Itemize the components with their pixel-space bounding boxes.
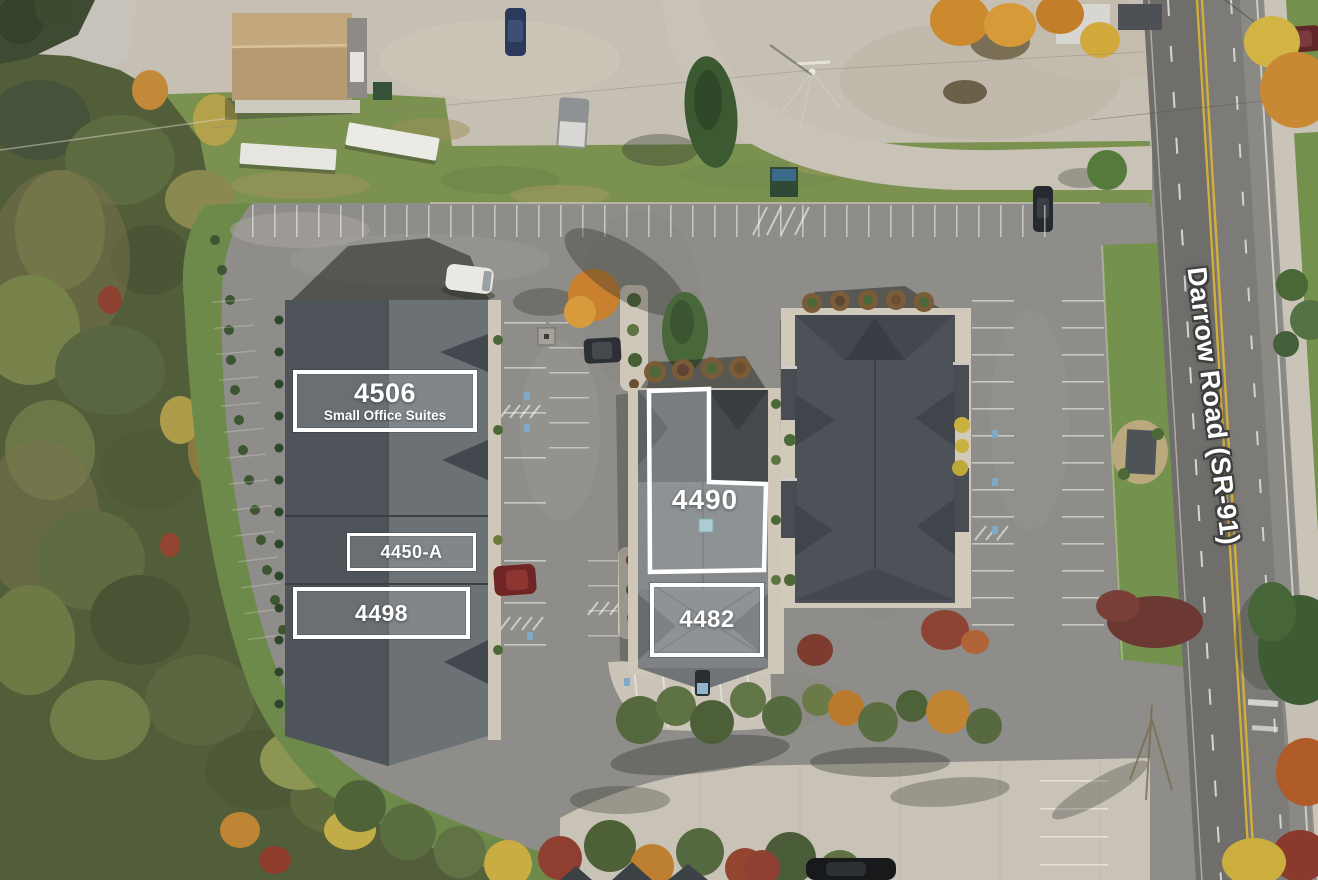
unit-label-4482: 4482 xyxy=(650,583,764,657)
unit-label-4450a: 4450-A xyxy=(347,533,476,571)
left-building-sidewalk xyxy=(488,300,501,740)
covered-vehicle xyxy=(695,670,710,696)
gray-truck xyxy=(556,97,589,149)
dark-trailer xyxy=(1118,4,1162,30)
unit-4482-address: 4482 xyxy=(679,607,734,632)
unit-label-4490: 4490 xyxy=(650,481,760,519)
left-building xyxy=(275,238,504,766)
unit-label-4498: 4498 xyxy=(293,587,470,639)
unit-4506-address: 4506 xyxy=(354,379,416,407)
unit-label-4506: 4506 Small Office Suites xyxy=(293,370,477,432)
unit-4450a-address: 4450-A xyxy=(380,543,442,562)
dumpster-shed xyxy=(373,82,392,100)
unit-4490-address: 4490 xyxy=(672,484,738,516)
monument-sign xyxy=(1125,429,1157,475)
aerial-scene xyxy=(0,0,1318,880)
dark-sedan xyxy=(583,337,621,364)
right-building xyxy=(780,286,989,654)
unit-4506-subtitle: Small Office Suites xyxy=(324,409,446,423)
blue-car xyxy=(505,8,526,56)
red-suv xyxy=(493,564,537,597)
dumpster-green xyxy=(770,167,798,197)
shed-building xyxy=(225,13,367,120)
unit-4498-address: 4498 xyxy=(355,601,408,625)
aerial-photo-stage: 4506 Small Office Suites 4450-A 4498 449… xyxy=(0,0,1318,880)
